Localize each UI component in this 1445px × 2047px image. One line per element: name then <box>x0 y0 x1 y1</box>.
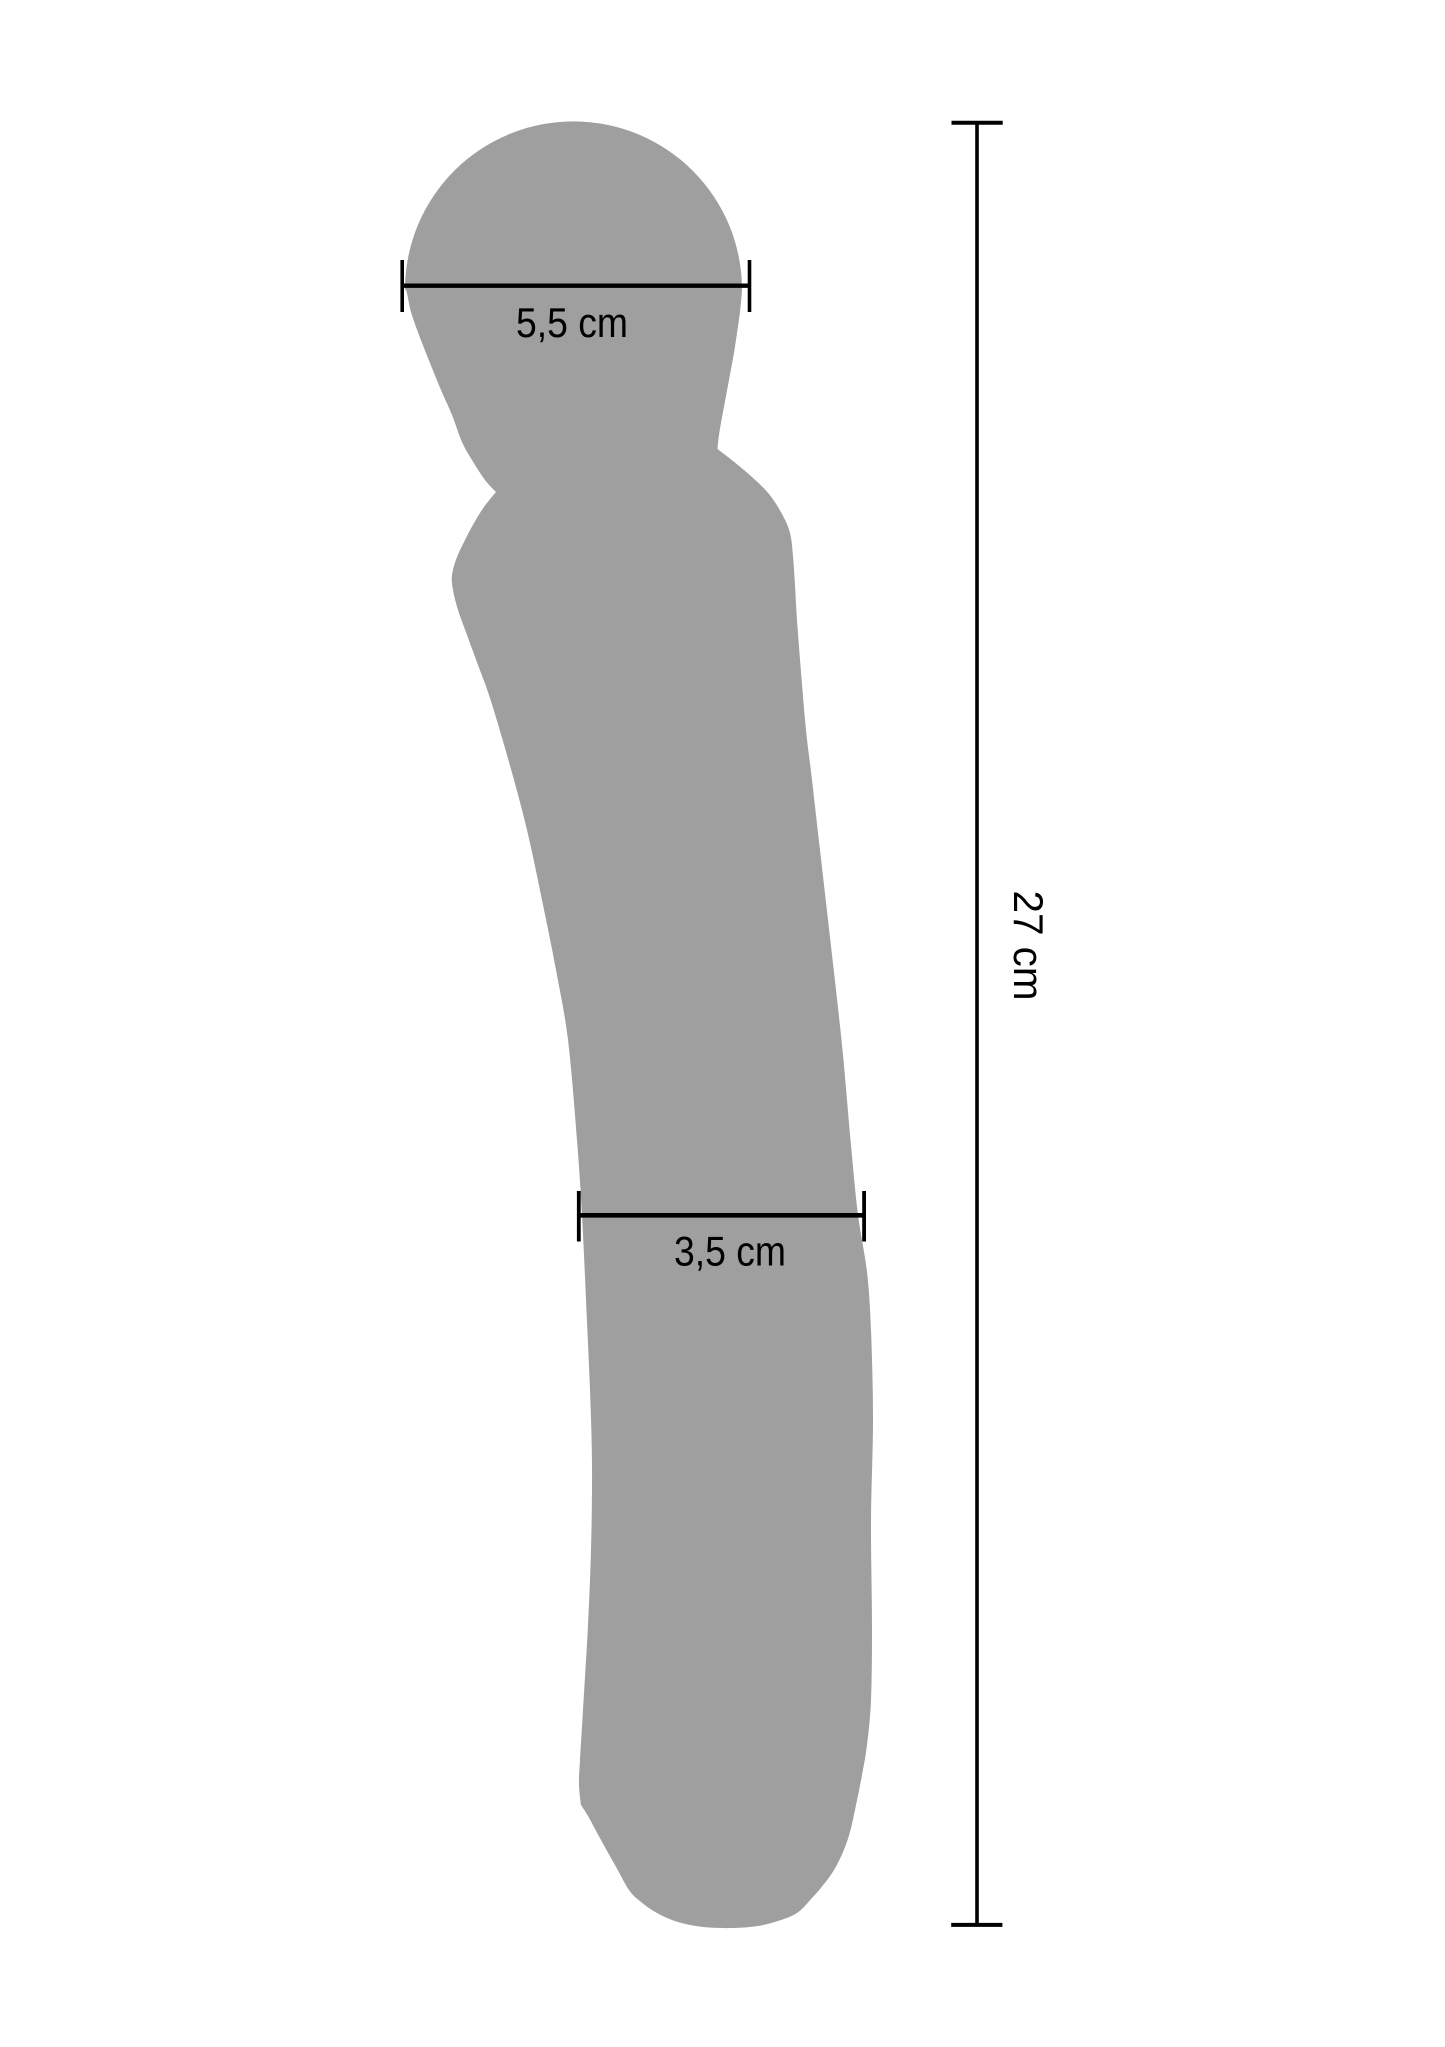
svg-text:3,5 cm: 3,5 cm <box>674 1228 786 1275</box>
svg-text:5,5 cm: 5,5 cm <box>516 299 628 346</box>
svg-text:27 cm: 27 cm <box>1005 891 1052 1001</box>
